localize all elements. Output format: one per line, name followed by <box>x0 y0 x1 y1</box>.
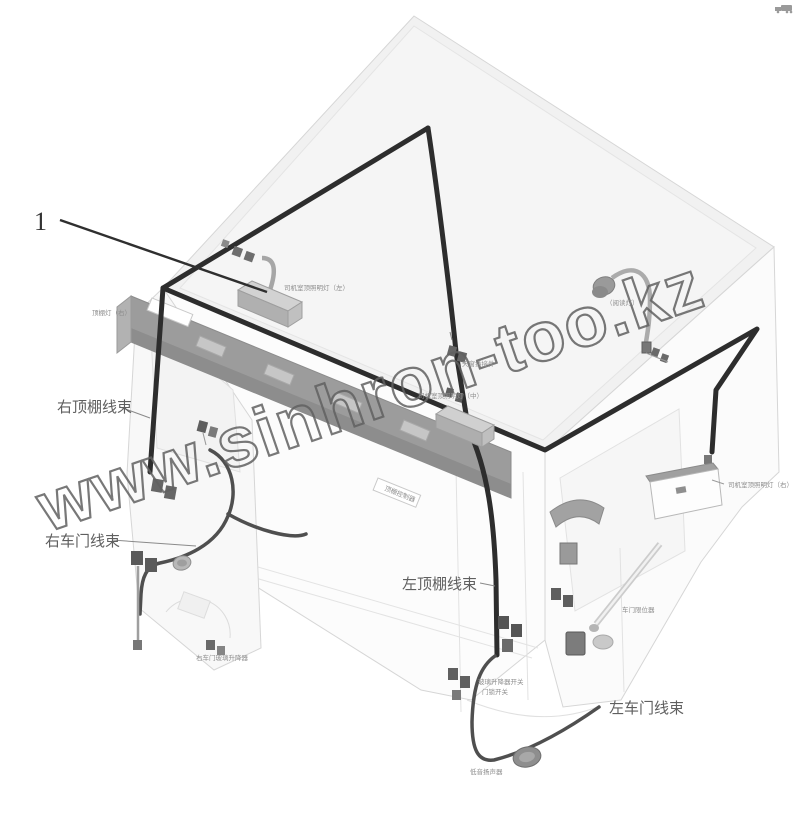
strap-bracket <box>589 624 599 632</box>
connector-icon <box>563 595 573 607</box>
connector-icon <box>131 551 143 565</box>
connector-icon <box>133 640 142 650</box>
window-switch-box <box>560 543 577 564</box>
label-reading-lamp: （阅读灯） <box>606 298 639 307</box>
label-door-lock-switch: 门锁开关 <box>482 687 509 696</box>
label-cab-lamp-left: 司机室顶照明灯（左） <box>284 283 349 292</box>
connector-icon <box>206 640 215 650</box>
label-door-module: 右车门玻璃升降器 <box>196 653 249 662</box>
connector-icon <box>642 342 651 353</box>
connector-icon <box>460 676 470 688</box>
tiny-truck-icon <box>775 5 792 13</box>
connector-icon <box>145 558 157 572</box>
connector-icon <box>452 690 461 700</box>
label-cab-lamp-right: 司机室顶照明灯（右） <box>728 480 793 489</box>
connector-icon <box>448 668 458 680</box>
label-right-roof-harness: 右顶棚线束 <box>57 399 132 416</box>
label-left-roof-harness: 左顶棚线束 <box>402 576 477 593</box>
connector-icon <box>502 639 513 652</box>
connector-icon <box>511 624 522 637</box>
connector-icon <box>704 455 712 464</box>
label-sunroof-connector: 天窗插接件 <box>462 359 495 368</box>
connector-icon <box>217 646 225 655</box>
callout-number: 1 <box>34 207 47 236</box>
label-woofer: 低音扬声器 <box>470 767 503 776</box>
label-roof-lamp-right: 顶棚灯（右） <box>92 308 131 317</box>
label-right-door-harness: 右车门线束 <box>45 533 120 550</box>
label-cab-lamp-middle: 司机室顶照明灯（中） <box>418 391 483 400</box>
label-left-door-harness: 左车门线束 <box>609 700 684 717</box>
door-lock-actuator <box>566 632 585 655</box>
label-window-regulator-switch: 玻璃升降器开关 <box>478 677 524 686</box>
connector-icon <box>551 588 561 600</box>
connector-icon <box>498 616 509 629</box>
handle-bezel <box>593 635 613 649</box>
console-endcap <box>117 296 131 353</box>
grommet-inner <box>177 560 187 567</box>
wiring-diagram-svg: www.sinhron-too.kz 1 右顶棚线束 右车门线束 左顶棚线束 左… <box>0 0 799 820</box>
diagram-canvas: www.sinhron-too.kz 1 右顶棚线束 右车门线束 左顶棚线束 左… <box>0 0 799 820</box>
label-door-stopper: 车门限位器 <box>622 605 655 614</box>
